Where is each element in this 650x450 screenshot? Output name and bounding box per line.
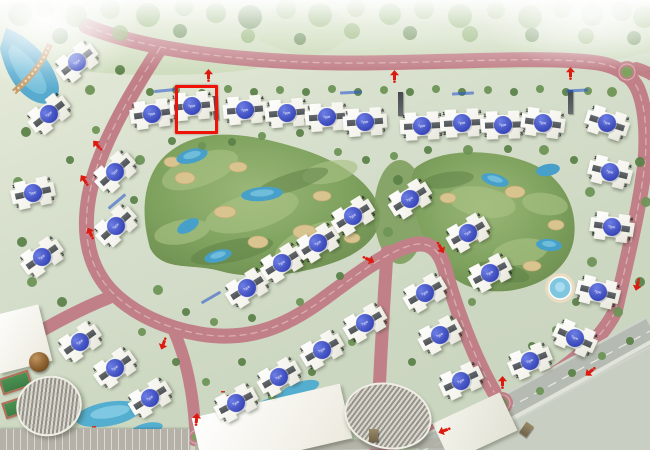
road-direction-arrow xyxy=(390,70,399,83)
road-direction-arrow xyxy=(204,69,213,82)
road-direction-arrow xyxy=(498,376,507,389)
road-direction-arrow xyxy=(191,413,201,427)
master-plan-map: 1423Type1423Type1423Type1423Type1423Type… xyxy=(0,0,650,450)
road-direction-arrow xyxy=(631,277,643,292)
road-direction-arrow xyxy=(361,253,377,267)
road-direction-arrow xyxy=(583,364,599,379)
road-direction-arrow xyxy=(77,173,92,189)
road-direction-arrow xyxy=(84,226,98,242)
road-direction-arrow xyxy=(433,240,447,256)
road-direction-arrow xyxy=(437,424,452,437)
road-direction-arrow xyxy=(90,138,105,154)
road-direction-arrow xyxy=(157,336,170,351)
road-arrows-layer xyxy=(0,0,650,450)
road-direction-arrow xyxy=(566,67,575,80)
